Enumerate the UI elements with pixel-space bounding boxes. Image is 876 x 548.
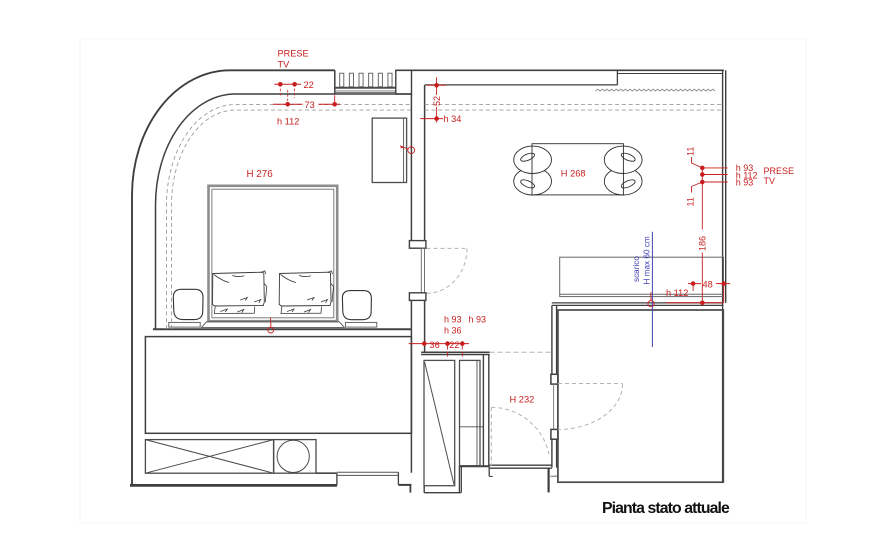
svg-text:73: 73 [305, 100, 315, 110]
svg-text:PRESE: PRESE [278, 49, 309, 59]
svg-text:TV: TV [278, 60, 291, 70]
svg-text:h 112: h 112 [666, 288, 688, 298]
svg-text:PRESE: PRESE [764, 166, 795, 176]
svg-text:H 232: H 232 [510, 395, 535, 405]
svg-text:h 112: h 112 [277, 117, 299, 127]
svg-text:11: 11 [686, 197, 696, 206]
svg-text:H 276: H 276 [247, 169, 274, 180]
svg-text:52: 52 [432, 96, 442, 106]
svg-text:h 36: h 36 [444, 325, 462, 335]
svg-text:TV: TV [764, 176, 776, 186]
svg-text:36: 36 [430, 340, 440, 350]
svg-text:H max 60 cm: H max 60 cm [642, 236, 651, 284]
svg-text:48: 48 [703, 279, 713, 289]
svg-text:h 93: h 93 [444, 315, 462, 325]
svg-text:186: 186 [698, 236, 708, 251]
svg-text:scarico: scarico [632, 256, 641, 282]
svg-text:22: 22 [304, 80, 314, 90]
svg-text:Pianta stato attuale: Pianta stato attuale [602, 500, 730, 517]
svg-text:h 93: h 93 [469, 315, 487, 325]
svg-text:11: 11 [686, 147, 696, 156]
svg-text:22: 22 [449, 340, 459, 350]
svg-text:h 93: h 93 [736, 178, 754, 188]
svg-text:H 268: H 268 [561, 169, 586, 179]
svg-text:h 34: h 34 [444, 114, 462, 124]
